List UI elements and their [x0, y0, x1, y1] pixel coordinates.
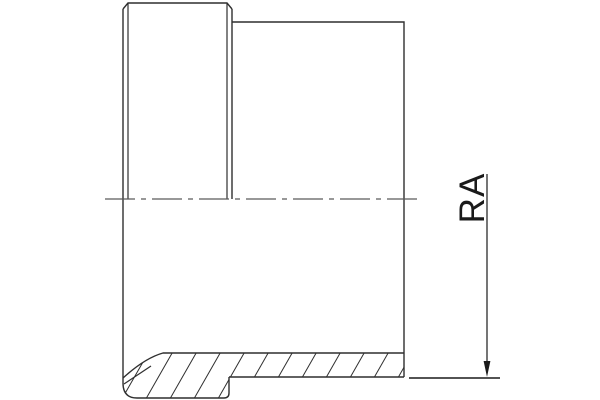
weld-taper-edge [124, 366, 151, 384]
dimension-arrowhead [484, 361, 491, 377]
fitting-section-drawing: RA [0, 0, 600, 400]
section-hatch [95, 334, 447, 400]
technical-drawing-canvas: RA [0, 0, 600, 400]
ra-dimension: RA [409, 173, 500, 378]
ra-label: RA [453, 173, 492, 224]
part-outline [123, 3, 404, 398]
neck-top-edge [123, 3, 232, 9]
left-end-and-bottom-edge [123, 9, 229, 398]
